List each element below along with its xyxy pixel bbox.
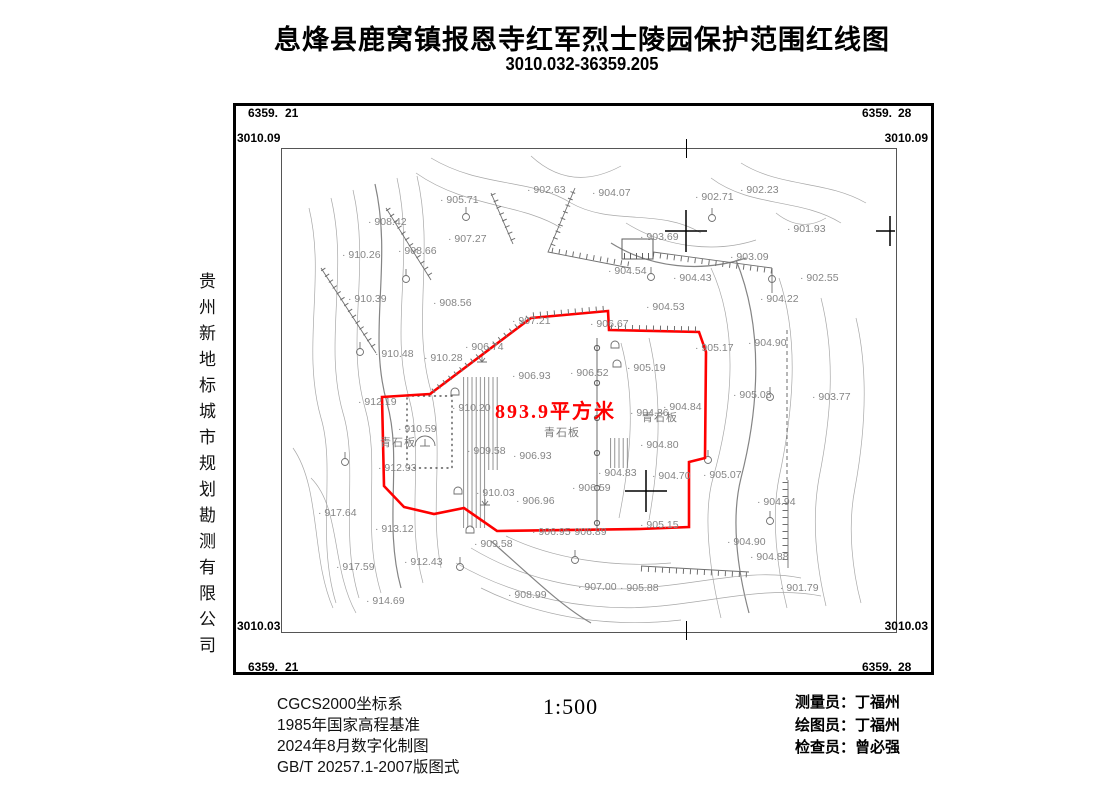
spot-elevation: · 910.28 [424, 352, 463, 364]
steps-hatch-lower [460, 470, 487, 528]
note-height-datum: 1985年国家高程基准 [277, 715, 459, 736]
spot-elevation: · 902.55 [800, 272, 839, 284]
spot-elevation: · 910.39 [348, 293, 387, 305]
spot-elevation: · 904.83 [598, 467, 637, 479]
spot-elevation: · 912.19 [358, 396, 397, 408]
spot-elevation: · 903.77 [812, 391, 851, 403]
spot-elevation: · 909.58 [467, 445, 506, 457]
spot-elevation: · 902.63 [527, 184, 566, 196]
spot-elevation: · 913.12 [375, 523, 414, 535]
spot-elevation: · 905.71 [440, 194, 479, 206]
spot-elevation: · 910.26 [342, 249, 381, 261]
surface-label-3: 青石板 [642, 410, 678, 424]
coord-bl-easting-suffix: 21 [285, 660, 298, 674]
spot-elevation: · 906.89 [568, 526, 607, 538]
spot-elevation: · 905.08 [733, 389, 772, 401]
spot-elevation: · 910.48 [375, 348, 414, 360]
spot-elevation: · 912.43 [404, 556, 443, 568]
spot-elevation: · 906.93 [513, 450, 552, 462]
spot-elevation: · 902.71 [695, 191, 734, 203]
surface-label-1: 青石板 [380, 435, 416, 449]
note-symbol-standard: GB/T 20257.1-2007版图式 [277, 757, 459, 778]
coord-br-easting-suffix: 28 [898, 660, 911, 674]
steps-hatch-east [610, 438, 630, 468]
spot-elevation: · 908.42 [368, 216, 407, 228]
spot-elevation: · 904.70 [652, 470, 691, 482]
spot-elevation: · 907.21 [512, 315, 551, 327]
company-name-vertical: 贵州新地标城市规划勘测有限公司 [193, 272, 218, 662]
spot-elevation: · 906.59 [572, 482, 611, 494]
spot-elevation: · 917.64 [318, 507, 357, 519]
spot-elevation: · 905.19 [627, 362, 666, 374]
spot-elevation: · 910.20 [452, 402, 491, 414]
spot-elevation: · 906.52 [570, 367, 609, 379]
coord-br-easting-prefix: 6359. [848, 660, 892, 674]
map-scale: 1:500 [543, 694, 598, 720]
spot-elevation: · 904.90 [748, 337, 787, 349]
spot-elevation: · 901.79 [780, 582, 819, 594]
spot-elevation: · 908.99 [508, 589, 547, 601]
coord-bl-northing: 3010.03 [237, 619, 280, 633]
spot-elevation: · 914.69 [366, 595, 405, 607]
spot-elevation: · 906.74 [465, 341, 504, 353]
spot-elevation: · 904.53 [646, 301, 685, 313]
spot-elevation: · 910.59 [398, 423, 437, 435]
note-coordinate-system: CGCS2000坐标系 [277, 694, 459, 715]
spot-elevation: · 906.95 [532, 526, 571, 538]
spot-elevation: · 903.09 [730, 251, 769, 263]
coord-tr-easting-suffix: 28 [898, 106, 911, 120]
spot-elevation: · 903.69 [640, 231, 679, 243]
spot-elevation: · 904.80 [640, 439, 679, 451]
spot-elevation: · 906.93 [512, 370, 551, 382]
spot-elevation: · 904.07 [592, 187, 631, 199]
coord-tl-northing: 3010.09 [237, 131, 280, 145]
spot-elevation: · 906.67 [590, 318, 629, 330]
personnel-block: 测量员：丁福州 绘图员：丁福州 检查员：曾必强 [795, 692, 900, 760]
spot-elevation: · 902.23 [740, 184, 779, 196]
coord-bl-easting-prefix: 6359. [233, 660, 278, 674]
spot-elevation: · 907.27 [448, 233, 487, 245]
spot-elevation: · 907.00 [578, 581, 617, 593]
spot-elevation: · 909.58 [474, 538, 513, 550]
spot-elevation: · 904.90 [727, 536, 766, 548]
coord-tr-easting-prefix: 6359. [848, 106, 892, 120]
map-notes: CGCS2000坐标系 1985年国家高程基准 2024年8月数字化制图 GB/… [277, 694, 459, 778]
surface-label-2: 青石板 [544, 425, 580, 439]
page-title: 息烽县鹿窝镇报恩寺红军烈士陵园保护范围红线图 [233, 18, 931, 57]
coord-tr-northing: 3010.09 [882, 131, 928, 145]
spot-elevation: · 904.94 [757, 496, 796, 508]
spot-elevation: · 912.93 [378, 462, 417, 474]
spot-elevation: · 901.93 [787, 223, 826, 235]
spot-elevation: · 917.59 [336, 561, 375, 573]
page-subtitle: 3010.032-36359.205 [261, 54, 903, 75]
spot-elevation: · 904.43 [673, 272, 712, 284]
spot-elevation: · 908.66 [398, 245, 437, 257]
inspector-row: 检查员：曾必强 [795, 737, 900, 760]
spot-elevation: · 905.07 [703, 469, 742, 481]
spot-elevation: · 910.03 [476, 487, 515, 499]
spot-elevation: · 904.88 [750, 551, 789, 563]
area-label: 893.9平方米 [495, 399, 616, 423]
note-digitized-date: 2024年8月数字化制图 [277, 736, 459, 757]
coord-tl-easting-prefix: 6359. [233, 106, 278, 120]
spot-elevation: · 904.54 [608, 265, 647, 277]
slope-hachures [321, 188, 788, 575]
spot-elevation: · 905.15 [640, 519, 679, 531]
spot-elevation: · 905.88 [620, 582, 659, 594]
drafter-row: 绘图员：丁福州 [795, 715, 900, 738]
coord-tl-easting-suffix: 21 [285, 106, 298, 120]
map-canvas: · 905.71· 902.63· 904.07· 902.71· 902.23… [281, 148, 895, 631]
spot-elevation: · 906.96 [516, 495, 555, 507]
surveyor-row: 测量员：丁福州 [795, 692, 900, 715]
spot-elevation: · 904.22 [760, 293, 799, 305]
spot-elevation: · 908.56 [433, 297, 472, 309]
spot-elevation: · 905.17 [695, 342, 734, 354]
